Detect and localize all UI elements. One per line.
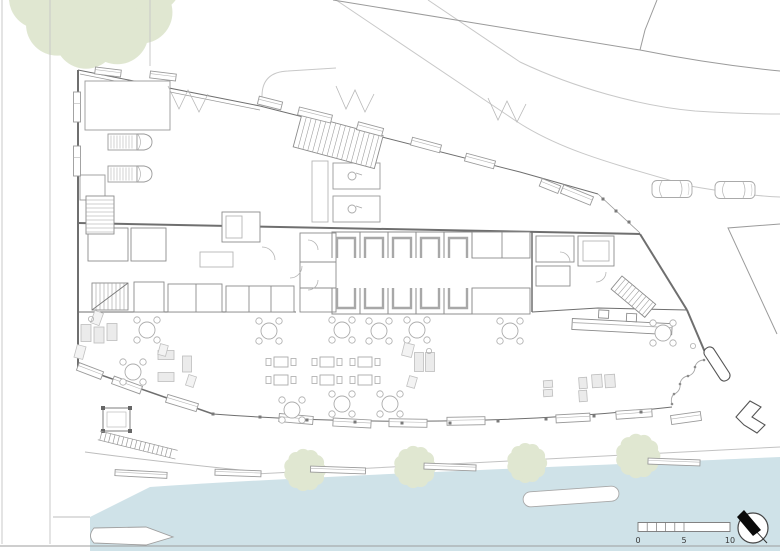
- delivery-van: [108, 134, 152, 150]
- round-table: [256, 318, 282, 344]
- wc-room-2: [333, 196, 380, 222]
- promenade-bench: [310, 466, 365, 474]
- chair: [266, 377, 271, 384]
- side-table: [74, 345, 86, 360]
- south-bench: [76, 363, 103, 380]
- lounge-sofa: [183, 356, 192, 372]
- south-bench: [616, 409, 652, 419]
- chair: [120, 379, 126, 385]
- column-post: [259, 416, 262, 419]
- chair: [670, 340, 676, 346]
- scale-label-0: 0: [635, 536, 640, 545]
- round-table: [329, 317, 355, 343]
- chair: [404, 317, 410, 323]
- chair: [377, 411, 383, 417]
- chair: [291, 377, 296, 384]
- chair: [350, 377, 355, 384]
- chair: [670, 320, 676, 326]
- picket: [130, 439, 132, 448]
- booth-cell: [360, 232, 388, 258]
- lounge-sofa: [426, 353, 435, 372]
- room-mid-south: [472, 288, 530, 314]
- chair: [386, 338, 392, 344]
- canopy-bench: [464, 153, 495, 168]
- chair: [266, 359, 271, 366]
- side-table: [91, 310, 104, 325]
- scale-label-10: 10: [725, 536, 735, 545]
- column-post: [401, 422, 404, 425]
- south-bench: [447, 417, 485, 426]
- picket: [108, 434, 110, 443]
- south-bench: [671, 411, 702, 424]
- chair: [377, 391, 383, 397]
- road-curb-near: [336, 0, 780, 197]
- north-strip-narrow-room: [312, 161, 328, 222]
- stair-flight: [86, 196, 114, 234]
- side-table: [407, 376, 418, 389]
- stool: [690, 343, 695, 348]
- chair: [375, 377, 380, 384]
- door-pivots: [671, 359, 706, 406]
- site-plan-drawing: 0 5 10: [0, 0, 780, 551]
- side-table: [402, 342, 415, 357]
- south-bench: [556, 413, 590, 423]
- picket: [165, 448, 167, 457]
- column-post: [593, 415, 596, 418]
- canopy-zigzag-2: [336, 86, 374, 112]
- room-west-4: [168, 284, 222, 312]
- canopy-bench: [257, 96, 282, 110]
- column-post: [449, 422, 452, 425]
- booth-cell: [416, 232, 444, 258]
- column-post: [615, 210, 618, 213]
- room-east-2: [536, 266, 570, 286]
- tree-icon: [9, 0, 181, 69]
- neighbor-boundary-3: [640, 50, 780, 71]
- picket: [113, 435, 115, 444]
- chair: [349, 391, 355, 397]
- yard_top-bench: [150, 71, 177, 81]
- booth-cell: [416, 288, 444, 314]
- lounge-sofa: [592, 374, 603, 388]
- lounge-sofa: [107, 324, 117, 341]
- picket: [157, 446, 159, 455]
- building-layer: [78, 70, 765, 472]
- parked-car: [715, 182, 755, 199]
- round-table: [329, 391, 355, 417]
- lounge-sofa: [543, 389, 552, 397]
- chair: [517, 318, 523, 324]
- chair: [397, 411, 403, 417]
- round-table: [404, 317, 430, 343]
- delivery-van: [108, 166, 152, 182]
- lounge-sofa: [158, 373, 174, 382]
- lounge-sofa: [81, 325, 91, 342]
- chair: [279, 417, 285, 423]
- room-west-3: [134, 282, 164, 312]
- chair: [154, 317, 160, 323]
- stair-flight: [293, 114, 383, 169]
- yard_left-bench: [74, 92, 81, 122]
- chair: [134, 317, 140, 323]
- chair: [279, 397, 285, 403]
- chair: [154, 337, 160, 343]
- room-west-2: [131, 228, 166, 261]
- round-table: [497, 318, 523, 344]
- canopy-zigzag-1: [168, 86, 208, 112]
- picket: [104, 433, 106, 442]
- round-table: [120, 359, 146, 385]
- lounge-sofa: [605, 374, 616, 388]
- yard_left-bench: [74, 146, 81, 176]
- lounge-sofa: [415, 353, 424, 372]
- round-table: [377, 391, 403, 417]
- neighbor-boundary-1: [333, 0, 640, 50]
- yard-storage-rect: [85, 81, 170, 130]
- booth-cell: [388, 288, 416, 314]
- booth-cell: [444, 232, 472, 258]
- chair: [299, 417, 305, 423]
- room-mid-north: [472, 232, 530, 258]
- picket: [148, 443, 150, 452]
- pair-table: [312, 357, 342, 367]
- column-post: [602, 198, 605, 201]
- chair: [650, 320, 656, 326]
- round-table: [366, 318, 392, 344]
- folding-doors: [671, 359, 706, 406]
- chair: [366, 338, 372, 344]
- chair: [329, 337, 335, 343]
- chair: [329, 391, 335, 397]
- lounge-sofa: [579, 377, 588, 389]
- chair: [134, 337, 140, 343]
- chair: [497, 338, 503, 344]
- chair: [386, 318, 392, 324]
- column-post: [545, 418, 548, 421]
- neighbor-boundary-2: [640, 0, 657, 50]
- booth-seating-rows: [332, 232, 472, 314]
- chair: [337, 359, 342, 366]
- picket: [100, 431, 102, 440]
- chair: [349, 337, 355, 343]
- southeast-jut-wall: [687, 310, 707, 357]
- chair: [329, 317, 335, 323]
- picket: [126, 438, 128, 447]
- room-east-3-inner: [583, 241, 609, 261]
- chair: [366, 318, 372, 324]
- lounge-sofa: [543, 380, 552, 388]
- pair-table: [312, 375, 342, 385]
- chair: [276, 318, 282, 324]
- chair: [140, 359, 146, 365]
- yard_top-bench: [95, 67, 122, 77]
- lounge-sofa: [579, 390, 588, 402]
- room-west-5: [226, 286, 294, 312]
- booth-cell: [360, 288, 388, 314]
- column-post: [354, 421, 357, 424]
- column-post: [212, 413, 215, 416]
- south-bench: [389, 419, 427, 428]
- chair: [256, 318, 262, 324]
- chair: [497, 318, 503, 324]
- kitchen-counter: [200, 252, 233, 267]
- chair: [276, 338, 282, 344]
- picket: [135, 440, 137, 449]
- promenade-bench: [424, 463, 476, 471]
- parked-car: [652, 181, 692, 198]
- chair: [650, 340, 656, 346]
- chair: [140, 379, 146, 385]
- chair: [424, 317, 430, 323]
- chair: [397, 391, 403, 397]
- wc-block: [300, 233, 336, 312]
- site-plan-sheet: 0 5 10: [0, 0, 780, 551]
- chair: [299, 397, 305, 403]
- chair: [329, 411, 335, 417]
- lounge-sofa: [94, 327, 104, 343]
- east-block-south-edge: [532, 308, 687, 312]
- neighbor-plot-east: [728, 224, 780, 334]
- picket: [117, 436, 119, 445]
- side-table: [185, 375, 196, 388]
- booth-cell: [444, 288, 472, 314]
- stair-flight: [92, 283, 128, 310]
- chair: [517, 338, 523, 344]
- booth-cell: [388, 232, 416, 258]
- pair-table: [266, 357, 296, 367]
- picket: [139, 441, 141, 450]
- promenade-bench: [648, 458, 700, 466]
- picket: [143, 442, 145, 451]
- pair-table: [266, 375, 296, 385]
- stair-flight: [611, 276, 656, 317]
- room-east-1: [536, 236, 574, 262]
- south-bench: [166, 394, 199, 411]
- picket: [161, 447, 163, 456]
- scale-label-5: 5: [681, 536, 686, 545]
- column-post: [640, 411, 643, 414]
- chair: [375, 359, 380, 366]
- picket: [170, 449, 172, 458]
- column-post: [306, 419, 309, 422]
- chair: [350, 359, 355, 366]
- driftwood-sculpture: [736, 401, 765, 433]
- chair: [291, 359, 296, 366]
- chair: [337, 377, 342, 384]
- vestibule-inner: [226, 216, 242, 238]
- south-bench: [333, 418, 371, 428]
- column-post: [628, 221, 631, 224]
- pair-table: [350, 375, 380, 385]
- promenade-bench: [215, 469, 261, 477]
- picket: [152, 445, 154, 454]
- picket: [122, 437, 124, 446]
- chair: [120, 359, 126, 365]
- chair: [312, 377, 317, 384]
- column-post: [497, 420, 500, 423]
- chair: [424, 337, 430, 343]
- round-table: [134, 317, 160, 343]
- promenade-bench: [115, 470, 167, 479]
- chair: [349, 317, 355, 323]
- chair: [256, 338, 262, 344]
- canopy-bench: [410, 137, 441, 152]
- canopy-zigzag-3: [488, 98, 526, 122]
- chair: [349, 411, 355, 417]
- chair: [312, 359, 317, 366]
- pair-table: [350, 357, 380, 367]
- tilted-lounger: [702, 345, 732, 383]
